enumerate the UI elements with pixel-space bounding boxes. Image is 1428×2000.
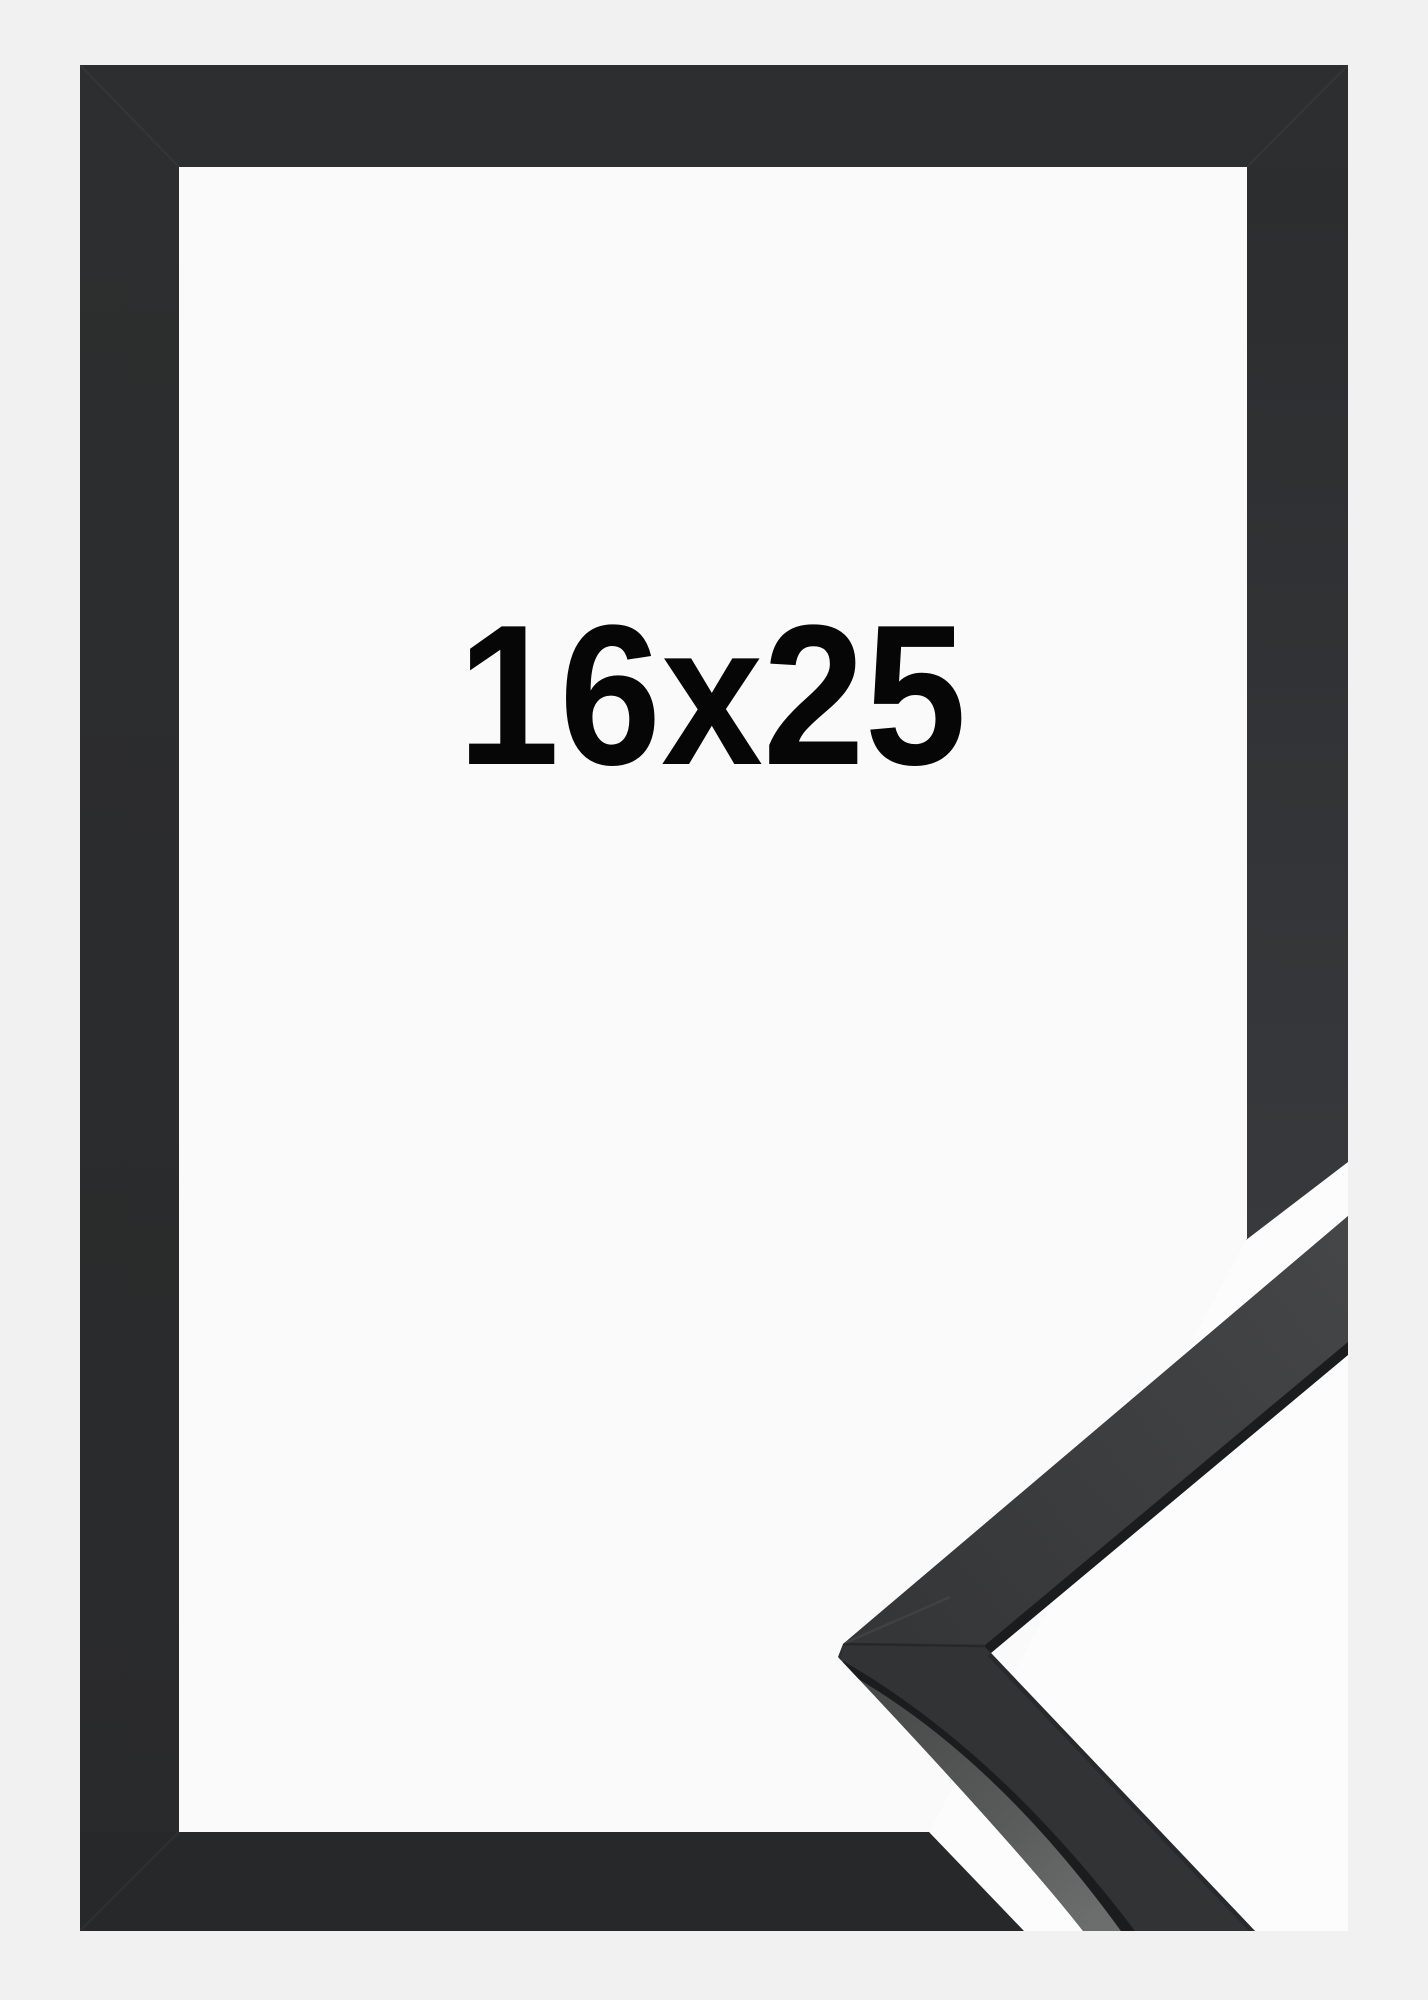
svg-text:16x25: 16x25 bbox=[458, 582, 967, 806]
